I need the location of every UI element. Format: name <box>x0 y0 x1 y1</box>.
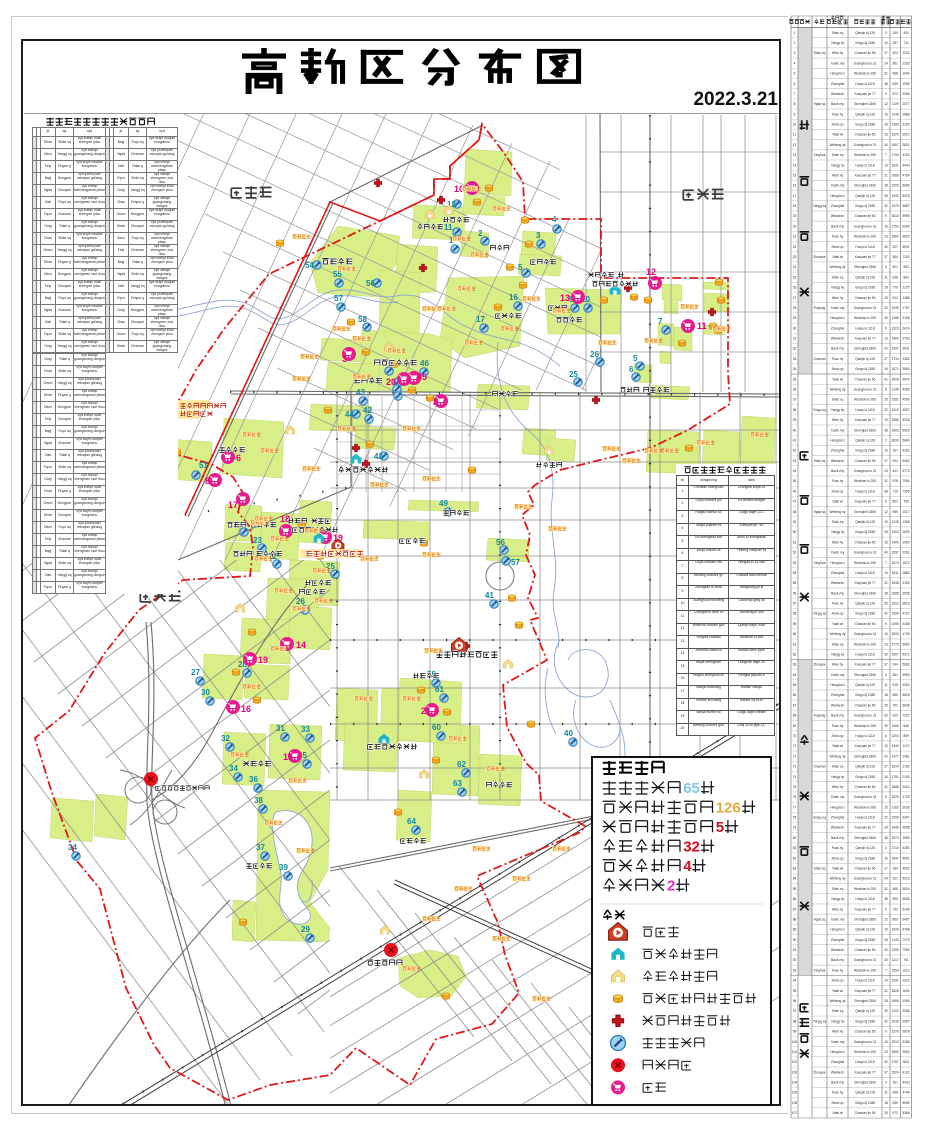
svg-text:30: 30 <box>884 1060 888 1064</box>
svg-text:39: 39 <box>884 316 888 320</box>
svg-text:37: 37 <box>793 398 797 402</box>
svg-text:38: 38 <box>884 489 888 493</box>
svg-text:5687: 5687 <box>902 204 909 208</box>
svg-text:1644: 1644 <box>902 72 909 76</box>
svg-text:1639: 1639 <box>902 530 909 534</box>
svg-text:706: 706 <box>903 500 909 504</box>
svg-text:1481: 1481 <box>902 754 909 758</box>
svg-text:Qianjin dj 128: Qianjin dj 128 <box>855 112 875 116</box>
svg-text:56: 56 <box>793 591 797 595</box>
svg-text:Shengbei 3366: Shengbei 3366 <box>854 428 876 432</box>
svg-text:Fuao hy: Fuao hy <box>832 479 844 483</box>
svg-text:100: 100 <box>792 1040 798 1044</box>
svg-text:Shengbei 3366: Shengbei 3366 <box>854 265 876 269</box>
svg-text:10: 10 <box>884 856 888 860</box>
svg-text:Huoju lu 1118: Huoju lu 1118 <box>855 897 874 901</box>
svg-text:31: 31 <box>884 479 888 483</box>
svg-text:5218: 5218 <box>902 418 909 422</box>
svg-text:4749: 4749 <box>902 632 909 636</box>
svg-text:7084: 7084 <box>902 479 909 483</box>
svg-text:227: 227 <box>893 245 899 249</box>
svg-text:Wankech: Wankech <box>831 459 844 463</box>
svg-text:85: 85 <box>793 887 797 891</box>
svg-text:5835: 5835 <box>902 897 909 901</box>
svg-text:Xueyuan jie 77: Xueyuan jie 77 <box>854 1070 875 1074</box>
svg-text:1751: 1751 <box>892 775 899 779</box>
svg-text:Chaoran jie 56: Chaoran jie 56 <box>855 948 876 952</box>
svg-text:60: 60 <box>793 632 797 636</box>
svg-text:2883: 2883 <box>902 571 909 575</box>
svg-text:Fuao hy: Fuao hy <box>832 724 844 728</box>
svg-text:Yangg sq: Yangg sq <box>813 612 826 616</box>
svg-text:37: 37 <box>884 663 888 667</box>
svg-text:Huoju lu 1118: Huoju lu 1118 <box>855 571 874 575</box>
svg-text:1340: 1340 <box>892 744 899 748</box>
svg-text:23: 23 <box>884 1050 888 1054</box>
svg-text:14: 14 <box>884 571 888 575</box>
svg-text:Yatai wt: Yatai wt <box>832 989 843 993</box>
svg-text:4754: 4754 <box>902 174 909 178</box>
svg-text:27: 27 <box>884 765 888 769</box>
svg-text:48: 48 <box>793 510 797 514</box>
svg-text:Guigu dj 2188: Guigu dj 2188 <box>855 286 875 290</box>
svg-text:701: 701 <box>903 958 909 962</box>
svg-text:Yangg sq: Yangg sq <box>813 204 826 208</box>
svg-text:698: 698 <box>893 72 899 76</box>
svg-text:6151: 6151 <box>902 449 909 453</box>
svg-text:638: 638 <box>893 275 899 279</box>
svg-text:105: 105 <box>792 1091 798 1095</box>
svg-text:1143: 1143 <box>892 938 899 942</box>
svg-text:6926: 6926 <box>902 703 909 707</box>
svg-text:3500: 3500 <box>902 1050 909 1054</box>
svg-text:6462: 6462 <box>902 459 909 463</box>
svg-text:715: 715 <box>893 489 899 493</box>
svg-text:2068: 2068 <box>892 174 899 178</box>
svg-text:Fuao hy: Fuao hy <box>832 1091 844 1095</box>
svg-text:1333: 1333 <box>902 61 909 65</box>
svg-text:1022: 1022 <box>902 51 909 55</box>
svg-text:1: 1 <box>794 31 796 35</box>
svg-text:Fuao hy: Fuao hy <box>832 112 844 116</box>
svg-text:578: 578 <box>893 479 899 483</box>
svg-text:106: 106 <box>792 1101 798 1105</box>
svg-text:Weifeng dy: Weifeng dy <box>830 388 846 392</box>
svg-text:1945: 1945 <box>902 999 909 1003</box>
svg-text:52: 52 <box>793 551 797 555</box>
svg-text:Hgda sq: Hgda sq <box>814 102 826 106</box>
svg-text:19: 19 <box>884 520 888 524</box>
svg-text:Weifeng dy: Weifeng dy <box>830 754 846 758</box>
svg-text:Xueyuan jie 77: Xueyuan jie 77 <box>854 907 875 911</box>
svg-text:69: 69 <box>793 724 797 728</box>
svg-text:7: 7 <box>794 92 796 96</box>
svg-text:Wankech: Wankech <box>831 1070 844 1074</box>
svg-text:Guigu sq: Guigu sq <box>813 816 826 820</box>
svg-text:28: 28 <box>884 591 888 595</box>
svg-text:Baoli zhy: Baoli zhy <box>831 469 844 473</box>
svg-text:Weishan lu 208: Weishan lu 208 <box>854 968 876 972</box>
svg-text:Huoju lu 1118: Huoju lu 1118 <box>855 653 874 657</box>
svg-text:381: 381 <box>893 673 899 677</box>
svg-text:44: 44 <box>793 469 797 473</box>
svg-text:Guanghua lu 31: Guanghua lu 31 <box>854 388 877 392</box>
svg-text:Guigu dj 2188: Guigu dj 2188 <box>855 1101 875 1105</box>
svg-text:35: 35 <box>793 377 797 381</box>
svg-text:Shengbei 3366: Shengbei 3366 <box>854 102 876 106</box>
svg-text:2616: 2616 <box>892 214 899 218</box>
svg-text:2205: 2205 <box>892 184 899 188</box>
svg-text:535: 535 <box>893 1101 899 1105</box>
svg-text:Jinxiu qc: Jinxiu qc <box>831 367 844 371</box>
svg-text:67: 67 <box>793 703 797 707</box>
svg-text:Xuefu my: Xuefu my <box>831 673 845 677</box>
svg-text:Jinxiu qc: Jinxiu qc <box>831 123 844 127</box>
svg-text:99: 99 <box>793 1030 797 1034</box>
svg-text:21: 21 <box>884 581 888 585</box>
svg-text:Weix hy: Weix hy <box>832 663 844 667</box>
svg-text:Guanghua lu 31: Guanghua lu 31 <box>854 469 877 473</box>
svg-text:4744: 4744 <box>902 1091 909 1095</box>
svg-text:Qianjin dj 128: Qianjin dj 128 <box>855 194 875 198</box>
svg-text:Weishan lu 208: Weishan lu 208 <box>854 1050 876 1054</box>
svg-text:28: 28 <box>884 999 888 1003</box>
svg-text:2650: 2650 <box>892 1050 899 1054</box>
svg-text:Qianjin dj 128: Qianjin dj 128 <box>855 1091 875 1095</box>
svg-text:10: 10 <box>793 123 797 127</box>
svg-text:Baoli zhy: Baoli zhy <box>831 591 844 595</box>
svg-text:12: 12 <box>884 510 888 514</box>
svg-text:43: 43 <box>793 459 797 463</box>
svg-text:Weifeng dy: Weifeng dy <box>830 265 846 269</box>
svg-text:Guigu dj 2188: Guigu dj 2188 <box>855 612 875 616</box>
svg-text:1734: 1734 <box>892 357 899 361</box>
svg-text:46: 46 <box>793 489 797 493</box>
svg-text:3969: 3969 <box>902 836 909 840</box>
svg-text:1657: 1657 <box>892 143 899 147</box>
svg-text:Xueyuan jie 77: Xueyuan jie 77 <box>854 337 875 341</box>
svg-text:26: 26 <box>884 123 888 127</box>
svg-text:18: 18 <box>884 693 888 697</box>
svg-text:Baoli zhy: Baoli zhy <box>831 347 844 351</box>
svg-text:2103: 2103 <box>902 775 909 779</box>
svg-text:1263: 1263 <box>892 530 899 534</box>
svg-text:Weix hy: Weix hy <box>832 540 844 544</box>
svg-text:Guanghua lu 31: Guanghua lu 31 <box>854 224 877 228</box>
svg-text:Weishan lu 208: Weishan lu 208 <box>854 398 876 402</box>
svg-text:9: 9 <box>885 622 887 626</box>
svg-text:1280: 1280 <box>892 948 899 952</box>
svg-text:84: 84 <box>793 877 797 881</box>
svg-text:71: 71 <box>793 744 797 748</box>
svg-text:22: 22 <box>884 408 888 412</box>
svg-text:Yatai wt: Yatai wt <box>832 622 843 626</box>
svg-text:31: 31 <box>793 337 797 341</box>
svg-text:Yatai wt: Yatai wt <box>832 255 843 259</box>
svg-text:Guigu dj 2188: Guigu dj 2188 <box>855 367 875 371</box>
svg-text:Shengbei 3366: Shengbei 3366 <box>854 347 876 351</box>
svg-text:Baoli zhy: Baoli zhy <box>831 102 844 106</box>
svg-text:458: 458 <box>893 887 899 891</box>
svg-text:2025: 2025 <box>892 795 899 799</box>
svg-text:321: 321 <box>893 877 899 881</box>
svg-text:25: 25 <box>884 703 888 707</box>
svg-text:32: 32 <box>793 347 797 351</box>
svg-text:2730: 2730 <box>902 337 909 341</box>
svg-text:1614: 1614 <box>892 765 899 769</box>
svg-text:Chaoran jie 56: Chaoran jie 56 <box>855 214 876 218</box>
svg-text:989: 989 <box>893 510 899 514</box>
svg-text:41: 41 <box>884 785 888 789</box>
svg-text:29: 29 <box>793 316 797 320</box>
svg-text:Guigu dj 2188: Guigu dj 2188 <box>855 123 875 127</box>
svg-text:Hengda lz: Hengda lz <box>830 316 845 320</box>
svg-text:4127: 4127 <box>902 612 909 616</box>
svg-text:62: 62 <box>793 653 797 657</box>
svg-text:20: 20 <box>884 347 888 351</box>
svg-text:40: 40 <box>793 428 797 432</box>
svg-text:3194: 3194 <box>902 581 909 585</box>
svg-text:595: 595 <box>893 897 899 901</box>
svg-text:6620: 6620 <box>902 235 909 239</box>
svg-text:Yangg hy: Yangg hy <box>831 286 845 290</box>
svg-text:78: 78 <box>793 816 797 820</box>
svg-text:Zhonghai: Zhonghai <box>831 204 845 208</box>
svg-text:23: 23 <box>793 255 797 259</box>
svg-text:792: 792 <box>893 703 899 707</box>
svg-text:5524: 5524 <box>902 887 909 891</box>
svg-text:1170: 1170 <box>903 744 910 748</box>
svg-text:Guanghua lu 31: Guanghua lu 31 <box>854 714 877 718</box>
svg-text:19: 19 <box>793 214 797 218</box>
svg-text:55: 55 <box>793 581 797 585</box>
svg-text:9: 9 <box>885 1030 887 1034</box>
svg-text:1417: 1417 <box>892 958 899 962</box>
svg-text:Xuefu my: Xuefu my <box>831 795 845 799</box>
svg-text:39: 39 <box>793 418 797 422</box>
svg-text:Weix hy: Weix hy <box>832 296 844 300</box>
svg-text:Weishan lu 208: Weishan lu 208 <box>854 887 876 891</box>
svg-text:548: 548 <box>903 724 909 728</box>
svg-text:Chaoran jie 56: Chaoran jie 56 <box>855 540 876 544</box>
svg-text:33: 33 <box>884 540 888 544</box>
svg-text:2577: 2577 <box>902 102 909 106</box>
svg-text:Guigu dj 2188: Guigu dj 2188 <box>855 449 875 453</box>
svg-text:Shde xq: Shde xq <box>832 765 844 769</box>
svg-text:1203: 1203 <box>892 734 899 738</box>
svg-text:4132: 4132 <box>902 153 909 157</box>
svg-text:Jinxiu qc: Jinxiu qc <box>831 489 844 493</box>
svg-text:90: 90 <box>793 938 797 942</box>
svg-text:Qianjin dj 128: Qianjin dj 128 <box>855 683 875 687</box>
svg-text:1049: 1049 <box>892 306 899 310</box>
svg-text:107: 107 <box>792 1111 798 1115</box>
svg-text:3189: 3189 <box>902 1040 909 1044</box>
svg-text:Guigu dj 2188: Guigu dj 2188 <box>855 693 875 697</box>
svg-text:2085: 2085 <box>892 591 899 595</box>
svg-text:Xueyuan jie 77: Xueyuan jie 77 <box>854 418 875 422</box>
svg-text:102: 102 <box>792 1060 798 1064</box>
svg-text:7390: 7390 <box>902 948 909 952</box>
svg-text:Guanghua lu 31: Guanghua lu 31 <box>854 877 877 881</box>
svg-text:23: 23 <box>884 235 888 239</box>
svg-text:32: 32 <box>884 306 888 310</box>
svg-text:Xueyuan jie 77: Xueyuan jie 77 <box>854 989 875 993</box>
svg-text:8: 8 <box>885 795 887 799</box>
svg-text:Baoli zhy: Baoli zhy <box>831 1081 844 1085</box>
svg-text:22: 22 <box>884 816 888 820</box>
svg-text:3347: 3347 <box>902 816 909 820</box>
svg-text:2787: 2787 <box>892 1060 899 1064</box>
svg-text:244: 244 <box>893 663 899 667</box>
svg-text:553: 553 <box>903 265 909 269</box>
svg-text:Xuefu my: Xuefu my <box>831 1040 845 1044</box>
svg-text:4285: 4285 <box>902 388 909 392</box>
svg-text:36: 36 <box>884 836 888 840</box>
svg-text:28: 28 <box>793 306 797 310</box>
svg-text:2419: 2419 <box>892 408 899 412</box>
svg-text:21: 21 <box>884 174 888 178</box>
svg-text:2496: 2496 <box>892 622 899 626</box>
svg-text:Shengbei 3366: Shengbei 3366 <box>854 184 876 188</box>
svg-text:41: 41 <box>884 377 888 381</box>
svg-text:2633: 2633 <box>892 632 899 636</box>
svg-text:4: 4 <box>794 61 796 65</box>
svg-text:96: 96 <box>793 999 797 1003</box>
svg-text:5: 5 <box>794 72 796 76</box>
svg-text:Xuefu my: Xuefu my <box>831 61 845 65</box>
svg-text:39: 39 <box>884 724 888 728</box>
svg-text:24: 24 <box>884 469 888 473</box>
svg-text:33: 33 <box>884 133 888 137</box>
svg-text:4122: 4122 <box>902 1070 909 1074</box>
svg-text:83: 83 <box>793 867 797 871</box>
svg-text:Weifeng dy: Weifeng dy <box>830 877 846 881</box>
svg-text:1017: 1017 <box>902 510 909 514</box>
svg-text:Jinxiu qc: Jinxiu qc <box>831 734 844 738</box>
svg-text:70: 70 <box>793 734 797 738</box>
svg-text:1126: 1126 <box>892 520 899 524</box>
svg-text:40: 40 <box>884 958 888 962</box>
svg-text:80: 80 <box>793 836 797 840</box>
svg-text:40: 40 <box>884 551 888 555</box>
svg-text:Wankech: Wankech <box>831 581 844 585</box>
svg-text:Chaoran jie 56: Chaoran jie 56 <box>855 1111 876 1115</box>
svg-text:Huoju lu 1118: Huoju lu 1118 <box>855 979 874 983</box>
svg-text:1175: 1175 <box>903 286 910 290</box>
svg-text:30: 30 <box>793 326 797 330</box>
svg-text:Shengbei 3366: Shengbei 3366 <box>854 1081 876 1085</box>
svg-text:929: 929 <box>893 714 899 718</box>
svg-text:5065: 5065 <box>902 184 909 188</box>
svg-text:400: 400 <box>903 31 909 35</box>
svg-text:66: 66 <box>793 693 797 697</box>
svg-text:3505: 3505 <box>902 591 909 595</box>
svg-text:Guigu dj 2188: Guigu dj 2188 <box>855 1019 875 1023</box>
svg-text:Guanghua lu 31: Guanghua lu 31 <box>854 61 877 65</box>
svg-text:89: 89 <box>793 928 797 932</box>
svg-text:Qianjin dj 128: Qianjin dj 128 <box>855 765 875 769</box>
svg-text:17: 17 <box>884 459 888 463</box>
svg-text:Chaoran jie 56: Chaoran jie 56 <box>855 459 876 463</box>
svg-text:1520: 1520 <box>892 133 899 137</box>
svg-text:1400: 1400 <box>892 540 899 544</box>
svg-text:8: 8 <box>794 102 796 106</box>
svg-text:852: 852 <box>893 500 899 504</box>
svg-text:Hengda lz: Hengda lz <box>830 561 845 565</box>
svg-text:42: 42 <box>884 1019 888 1023</box>
svg-text:14: 14 <box>884 163 888 167</box>
svg-text:4: 4 <box>885 265 887 269</box>
svg-text:Shde xq: Shde xq <box>832 1009 844 1013</box>
svg-text:Jinxiu qc: Jinxiu qc <box>831 245 844 249</box>
svg-text:Shde xq: Shde xq <box>832 887 844 891</box>
svg-text:Shengbei 3366: Shengbei 3366 <box>854 999 876 1003</box>
svg-text:104: 104 <box>792 1081 798 1085</box>
svg-text:Wankech: Wankech <box>831 826 844 830</box>
svg-text:Fuao hy: Fuao hy <box>832 357 844 361</box>
svg-text:711: 711 <box>903 41 908 45</box>
svg-text:Chaoran: Chaoran <box>813 357 825 361</box>
svg-text:3974: 3974 <box>902 377 909 381</box>
svg-text:36: 36 <box>793 388 797 392</box>
svg-text:Guanghua lu 31: Guanghua lu 31 <box>854 958 877 962</box>
svg-text:20: 20 <box>793 224 797 228</box>
svg-text:Shengbei 3366: Shengbei 3366 <box>854 836 876 840</box>
svg-text:Qianjin dj 128: Qianjin dj 128 <box>855 439 875 443</box>
svg-text:4907: 4907 <box>902 408 909 412</box>
svg-text:Chaoran jie 56: Chaoran jie 56 <box>855 377 876 381</box>
svg-text:Hengda lz: Hengda lz <box>830 72 845 76</box>
svg-text:2556: 2556 <box>892 418 899 422</box>
svg-text:3510: 3510 <box>902 133 909 137</box>
svg-text:2567: 2567 <box>902 1019 909 1023</box>
svg-text:51: 51 <box>793 540 797 544</box>
svg-text:6: 6 <box>794 82 796 86</box>
svg-text:21: 21 <box>884 989 888 993</box>
svg-text:77: 77 <box>793 805 797 809</box>
svg-text:21: 21 <box>793 235 797 239</box>
svg-text:25: 25 <box>793 275 797 279</box>
svg-text:5055: 5055 <box>902 1101 909 1105</box>
svg-text:Jinxiu qc: Jinxiu qc <box>831 856 844 860</box>
svg-text:26: 26 <box>884 938 888 942</box>
svg-text:Shengbei 3366: Shengbei 3366 <box>854 591 876 595</box>
svg-text:Weix hy: Weix hy <box>832 51 844 55</box>
svg-text:364: 364 <box>893 255 899 259</box>
svg-text:Guigu dj 2188: Guigu dj 2188 <box>855 530 875 534</box>
svg-text:1888: 1888 <box>892 785 899 789</box>
svg-text:22: 22 <box>793 245 797 249</box>
svg-text:Weifeng dy: Weifeng dy <box>830 999 846 1003</box>
svg-text:Huoju lu 1118: Huoju lu 1118 <box>855 408 874 412</box>
svg-text:Wankech: Wankech <box>831 703 844 707</box>
svg-text:Shde sq: Shde sq <box>814 867 826 871</box>
svg-text:Qianjin dj 128: Qianjin dj 128 <box>855 275 875 279</box>
svg-text:5213: 5213 <box>902 877 909 881</box>
svg-text:Weifeng dy: Weifeng dy <box>830 632 846 636</box>
svg-text:82: 82 <box>793 856 797 860</box>
svg-text:97: 97 <box>793 1009 797 1013</box>
svg-text:3: 3 <box>885 846 887 850</box>
svg-text:Chaoran: Chaoran <box>813 765 825 769</box>
svg-text:17: 17 <box>884 867 888 871</box>
svg-text:1006: 1006 <box>892 928 899 932</box>
svg-text:33: 33 <box>884 948 888 952</box>
svg-text:74: 74 <box>793 775 797 779</box>
svg-text:35: 35 <box>884 602 888 606</box>
svg-text:Yangg hy: Yangg hy <box>831 897 845 901</box>
